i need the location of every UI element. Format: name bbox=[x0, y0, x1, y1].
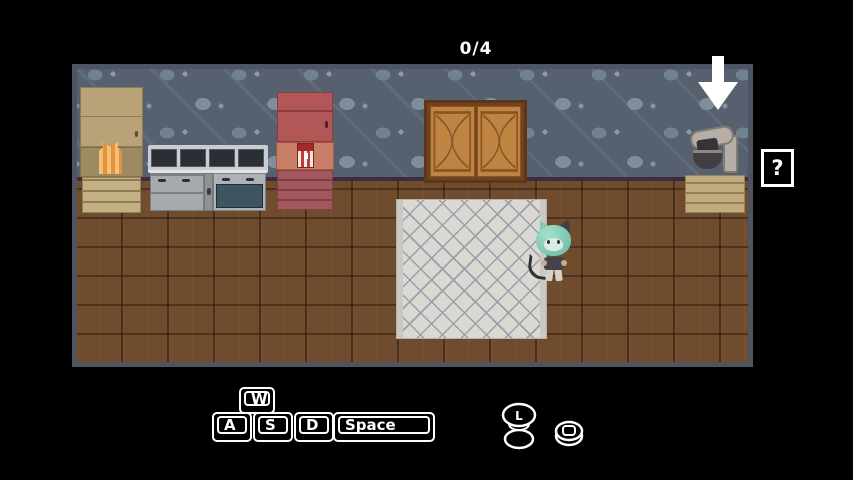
tiled-rug bbox=[397, 200, 546, 338]
left-mouse-label: L bbox=[515, 409, 523, 423]
oven-handle bbox=[222, 178, 230, 181]
stove-drawers bbox=[150, 173, 204, 211]
stand-mixer bbox=[687, 119, 743, 177]
player-character bbox=[536, 225, 572, 287]
key-s-icon: S bbox=[253, 412, 293, 442]
snack-box-label bbox=[304, 153, 308, 159]
down-arrow-icon bbox=[696, 56, 740, 114]
stove-divider bbox=[204, 173, 213, 211]
key-space-icon: Space bbox=[333, 412, 435, 442]
pantry-cabinet[interactable] bbox=[80, 87, 143, 213]
burner-window bbox=[180, 149, 206, 167]
character-arm bbox=[561, 260, 567, 266]
stove-knob bbox=[207, 188, 211, 195]
mouse-wheel-icon bbox=[551, 416, 587, 450]
stove-burner-panel bbox=[148, 145, 268, 173]
key-space-label: Space bbox=[338, 416, 430, 434]
left-mouse-button-icon: L bbox=[498, 402, 540, 450]
oven bbox=[213, 173, 266, 211]
door-carving bbox=[478, 107, 521, 176]
wall-cabinet-door-left bbox=[430, 106, 475, 177]
key-a-label: A bbox=[217, 416, 247, 434]
help-button[interactable]: ? bbox=[761, 149, 794, 187]
burner-window bbox=[238, 149, 264, 167]
key-a-icon: A bbox=[212, 412, 252, 442]
mixer-station[interactable] bbox=[685, 119, 745, 214]
key-s-label: S bbox=[258, 416, 288, 434]
door-split-line bbox=[278, 110, 332, 112]
oven-door bbox=[216, 184, 263, 208]
mixer-bowl bbox=[693, 150, 722, 169]
mixer-counter bbox=[685, 175, 745, 213]
red-cabinet[interactable] bbox=[276, 92, 334, 210]
red-cabinet-drawers bbox=[277, 170, 333, 210]
door-carving bbox=[431, 107, 474, 176]
wall-cabinet-door-right bbox=[477, 106, 522, 177]
game-viewport bbox=[72, 64, 753, 367]
game-screen: 0/4 bbox=[0, 0, 853, 480]
pantry-door-bottom bbox=[80, 116, 143, 147]
red-cabinet-door bbox=[277, 92, 333, 142]
red-cabinet-handle bbox=[325, 121, 328, 128]
pantry-handle bbox=[135, 131, 138, 137]
drawer-handle bbox=[182, 179, 190, 182]
character-eye bbox=[557, 240, 560, 244]
oven-handle bbox=[246, 178, 254, 181]
character-eye bbox=[547, 240, 550, 244]
stove-oven[interactable] bbox=[148, 145, 268, 211]
key-d-icon: D bbox=[294, 412, 334, 442]
character-arm bbox=[541, 260, 547, 266]
burner-window bbox=[209, 149, 235, 167]
burner-window bbox=[151, 149, 177, 167]
task-counter: 0/4 bbox=[446, 39, 506, 59]
key-w-icon: W bbox=[239, 387, 275, 414]
striped-snack-box bbox=[297, 143, 314, 168]
pantry-door-top bbox=[80, 87, 143, 117]
stove-body bbox=[150, 173, 266, 211]
pantry-drawers bbox=[82, 177, 141, 213]
wooden-wall-cabinet[interactable] bbox=[424, 100, 527, 183]
snack-box-flap bbox=[298, 144, 313, 151]
key-d-label: D bbox=[299, 416, 329, 434]
drawer-handle bbox=[158, 179, 166, 182]
key-w-label: W bbox=[244, 391, 270, 406]
